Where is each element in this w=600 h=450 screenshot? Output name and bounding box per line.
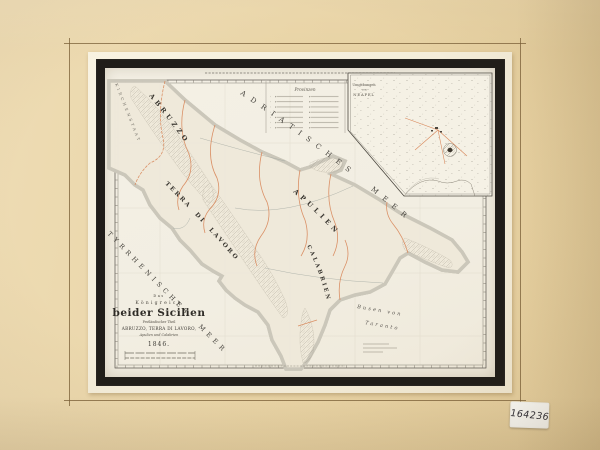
- framed-map-photo: 6: [0, 0, 600, 450]
- title-pretitle: Das: [153, 294, 164, 298]
- legend-column-right: [308, 94, 342, 130]
- legend-provinces: Provinzen: [266, 81, 345, 133]
- legend-title: Provinzen: [293, 87, 315, 92]
- inset-title-line3: NEAPEL: [353, 92, 374, 97]
- gulf-of-taranto-label-2: Taranto: [365, 320, 400, 332]
- title-upper: Königreich: [135, 300, 182, 306]
- title-regions2: Apulien und Calabrien: [139, 333, 179, 337]
- title-subtitle: Festländischer Theil: [143, 320, 176, 324]
- map-sheet: 6: [105, 68, 495, 377]
- inset-title-line2: von: [360, 88, 366, 92]
- title-main: beider Sicilien: [113, 307, 206, 319]
- inset-map-naples: Umgebungen von NEAPEL: [348, 73, 492, 196]
- gulf-of-taranto-label-1: Busen von: [356, 304, 403, 318]
- engraved-map: 6: [105, 68, 495, 377]
- title-cartouche: Das Königreich beider Sicilien Festländi…: [113, 294, 206, 360]
- title-year: 1846.: [148, 341, 170, 348]
- inventory-tag-number: 164236: [509, 408, 550, 423]
- inventory-tag: 164236: [510, 401, 550, 428]
- title-regions: ABRUZZO, TERRA DI LAVORO,: [121, 326, 196, 331]
- inset-title-line1: Umgebungen: [352, 83, 376, 87]
